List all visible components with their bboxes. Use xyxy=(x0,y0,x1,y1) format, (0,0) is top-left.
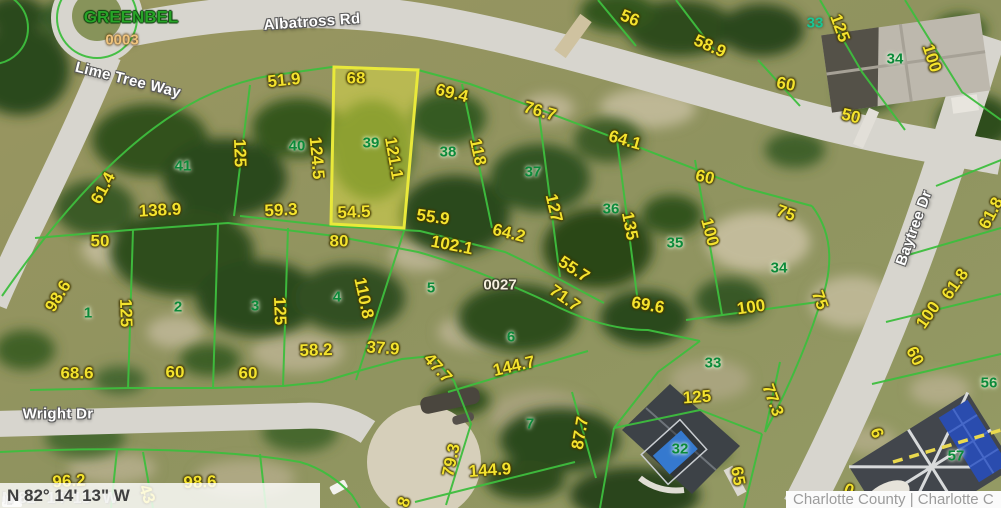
selected-parcel[interactable] xyxy=(331,67,418,228)
attribution-text: Charlotte County | Charlotte C xyxy=(793,491,994,508)
coordinate-text: N 82° 14' 13" W xyxy=(7,486,130,506)
map-attribution: Charlotte County | Charlotte C xyxy=(786,491,1001,508)
coordinate-overlay: N 82° 14' 13" W xyxy=(0,483,320,508)
aerial-map xyxy=(0,0,1001,508)
map-stage: N 82° 14' 13" W N 82° 14' 13" W Charlott… xyxy=(0,0,1001,508)
